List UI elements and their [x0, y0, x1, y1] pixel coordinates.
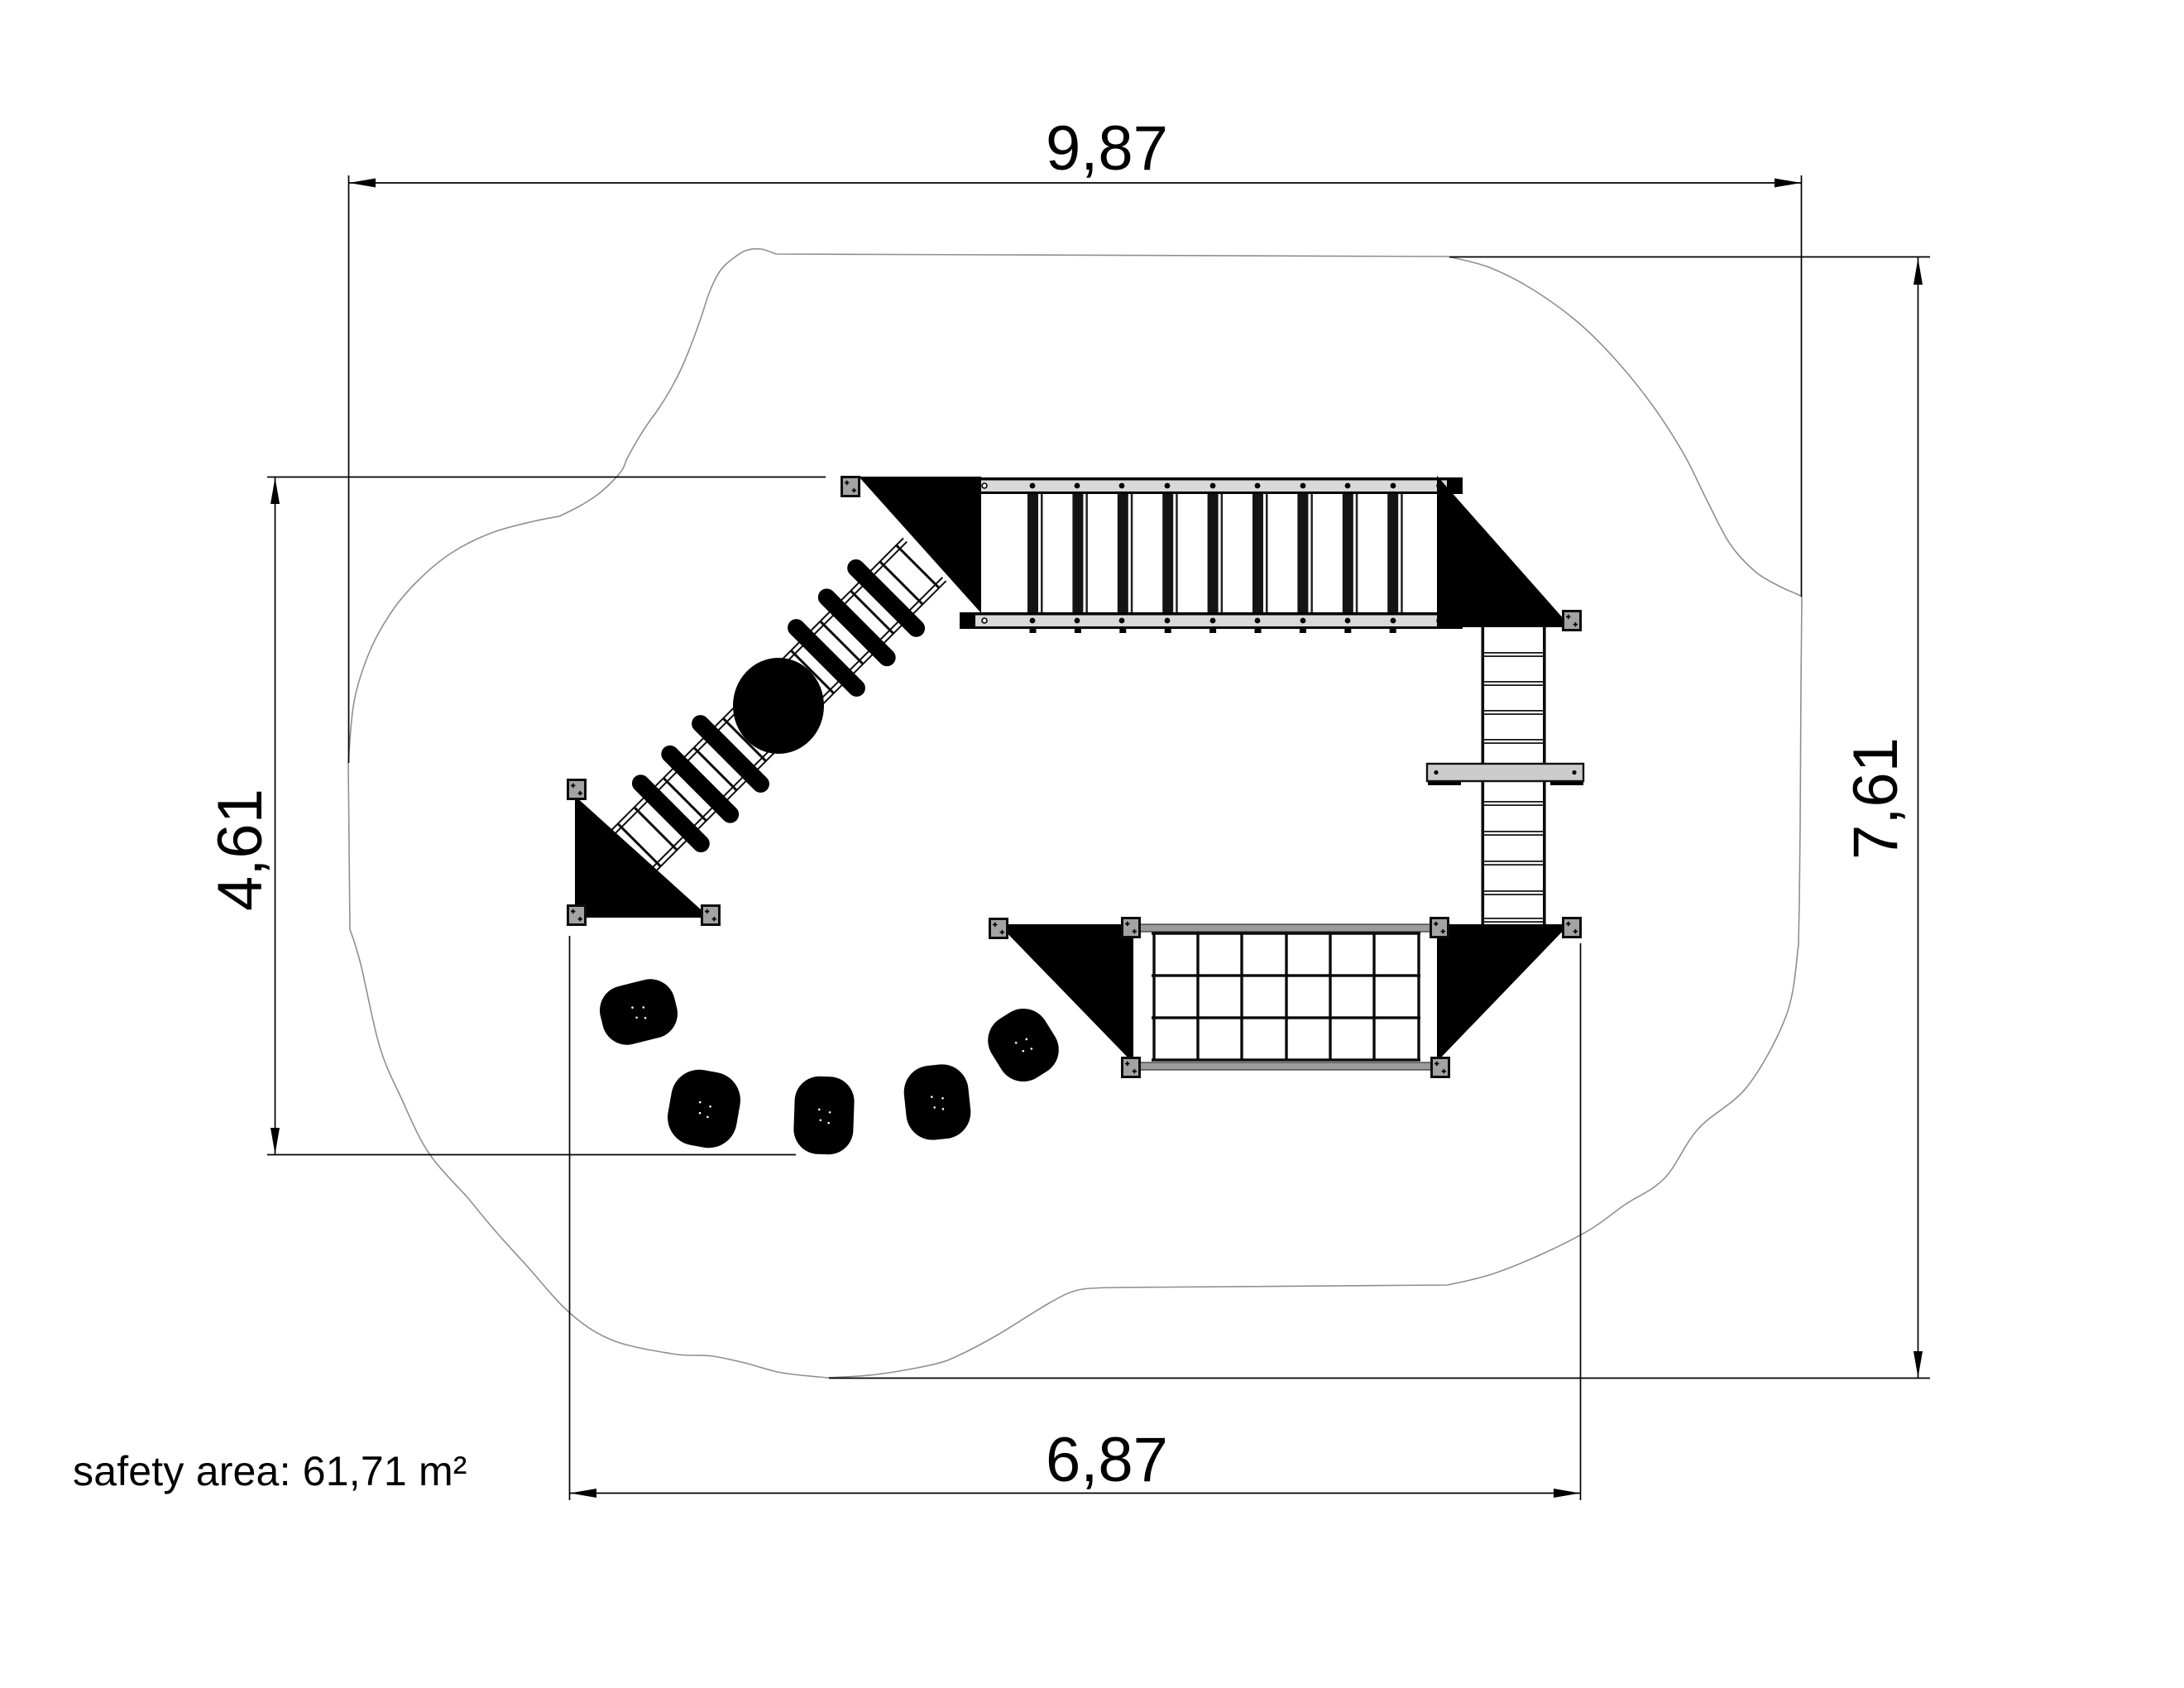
svg-text:safety area: 61,71 m²: safety area: 61,71 m²: [73, 1448, 467, 1494]
svg-text:7,61: 7,61: [1841, 737, 1911, 860]
svg-text:6,87: 6,87: [1046, 1425, 1168, 1495]
svg-text:4,61: 4,61: [205, 789, 275, 911]
svg-text:9,87: 9,87: [1046, 113, 1168, 184]
